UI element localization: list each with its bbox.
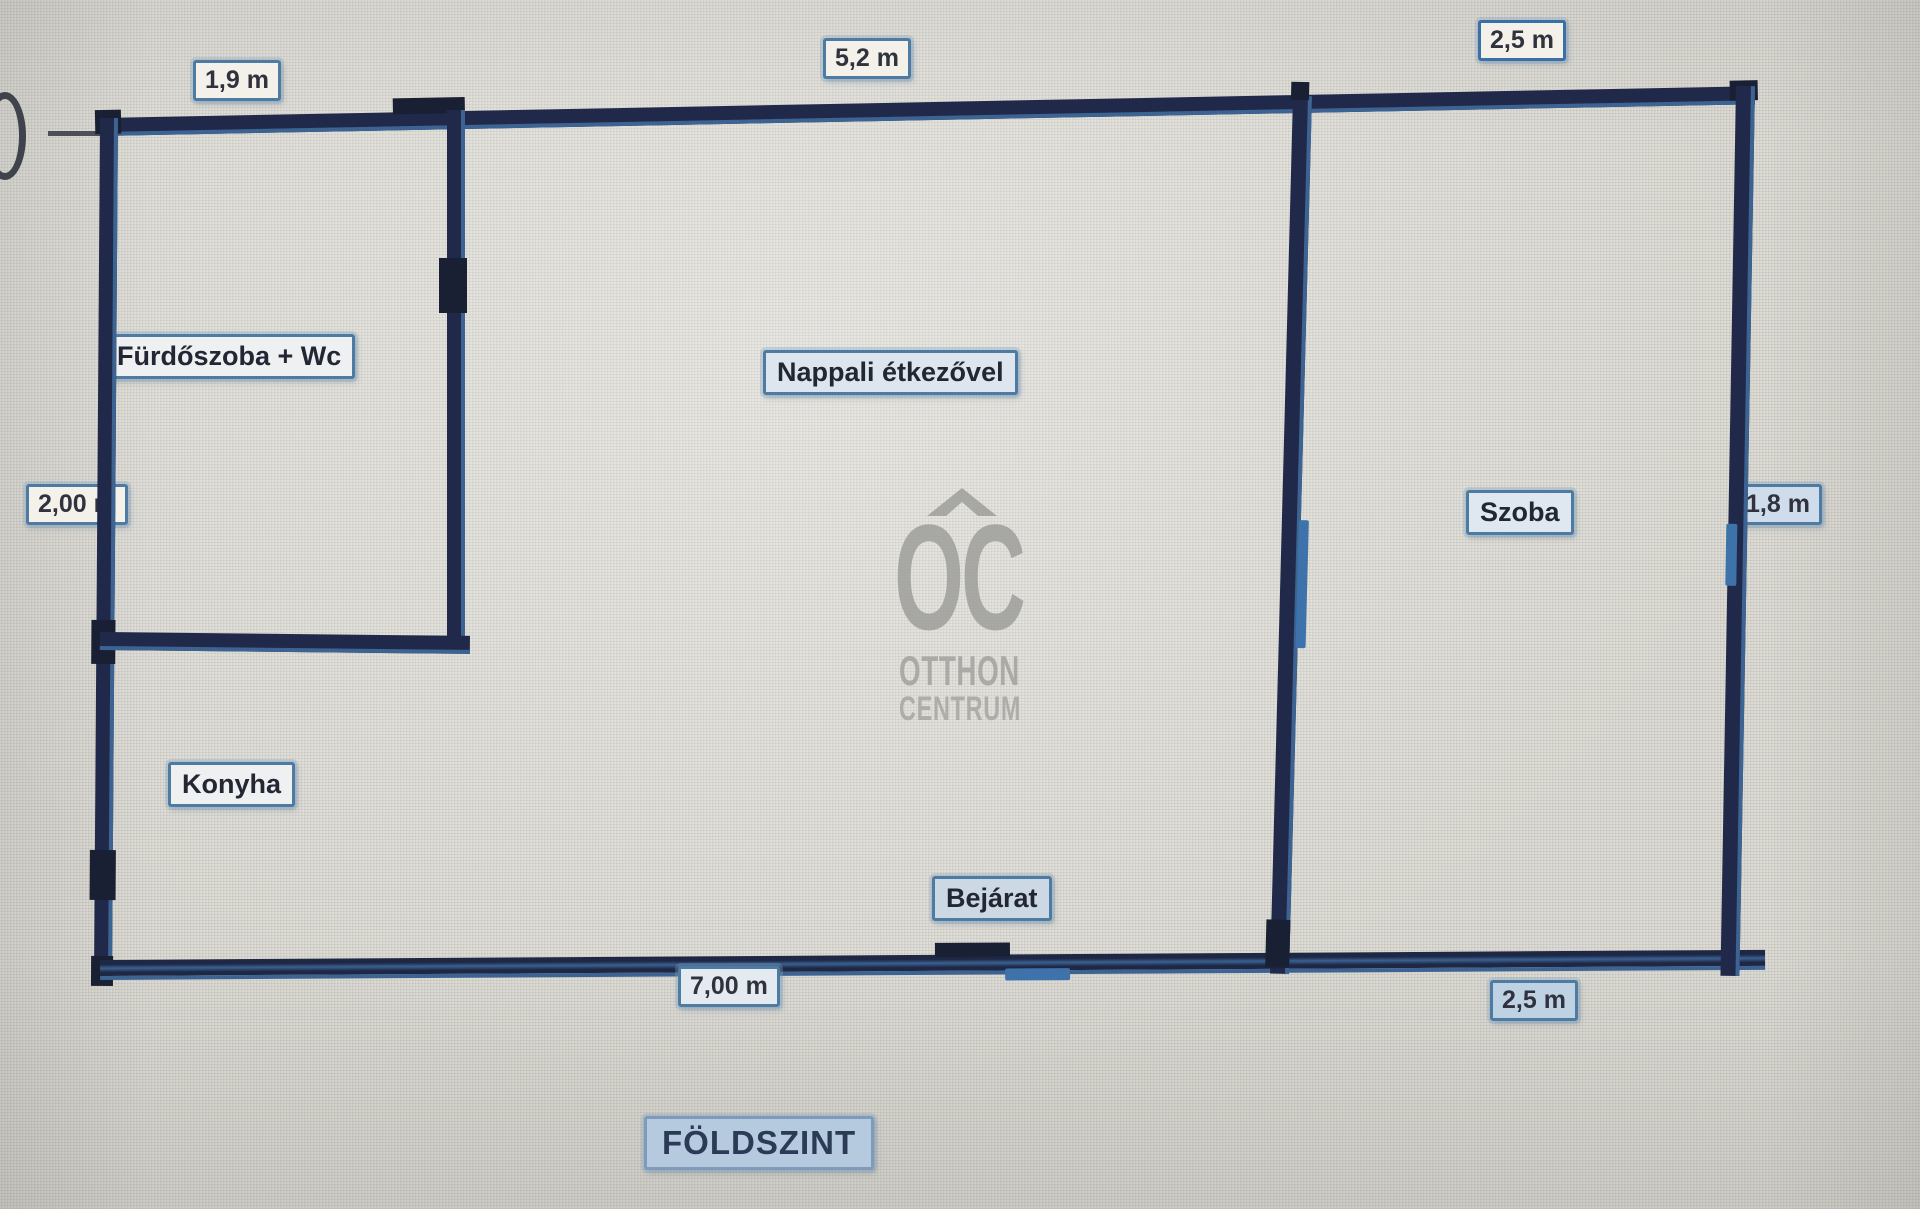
room-label-living: Nappali étkezővel: [763, 350, 1018, 395]
wall-left: [94, 118, 118, 978]
dimension-bottom-middle: 7,00 m: [678, 966, 780, 1007]
dimension-top-left: 1,9 m: [193, 60, 281, 101]
dimension-top-middle: 5,2 m: [823, 38, 911, 79]
dimension-bottom-right: 2,5 m: [1490, 980, 1578, 1021]
window-line-left: [48, 131, 102, 136]
floor-title: FÖLDSZINT: [644, 1116, 874, 1170]
bathroom-door-blob: [439, 258, 467, 313]
wall-bottom: [100, 950, 1765, 980]
room-label-kitchen: Konyha: [168, 762, 295, 807]
wall-room-separator: [1270, 96, 1312, 974]
wall-bathroom-right: [447, 110, 465, 648]
separator-door-mark: [1296, 520, 1309, 648]
wall-right: [1720, 86, 1755, 976]
separator-top-stub: [1291, 82, 1309, 100]
watermark-initials: OC: [894, 502, 1023, 652]
separator-bottom-blob: [1265, 919, 1290, 968]
watermark-line2: CENTRUM: [899, 692, 1021, 726]
otthon-centrum-watermark: OC OTTHON CENTRUM: [897, 481, 1057, 731]
room-label-room: Szoba: [1466, 490, 1574, 535]
entrance-door-jamb-left: [935, 942, 1010, 956]
floorplan-photo: { "floor": { "title": "FÖLDSZINT" }, "wa…: [0, 0, 1920, 1209]
screen-artifact: [0, 92, 26, 180]
entrance-door-mark: [1005, 968, 1070, 980]
dimension-top-right: 2,5 m: [1478, 20, 1566, 61]
room-label-bathroom: Fürdőszoba + Wc: [103, 334, 355, 379]
watermark-line1: OTTHON: [899, 650, 1020, 692]
room-label-entrance: Bejárat: [932, 876, 1052, 921]
floorplan-diagram: 1,9 m 5,2 m 2,5 m 2,00 m 1,8 m 7,00 m 2,…: [0, 0, 1920, 1209]
wall-bathroom-bottom: [100, 632, 470, 654]
wall-joint-left-low: [90, 850, 116, 900]
wall-top: [100, 86, 1755, 136]
window-mark-right: [1725, 524, 1737, 586]
